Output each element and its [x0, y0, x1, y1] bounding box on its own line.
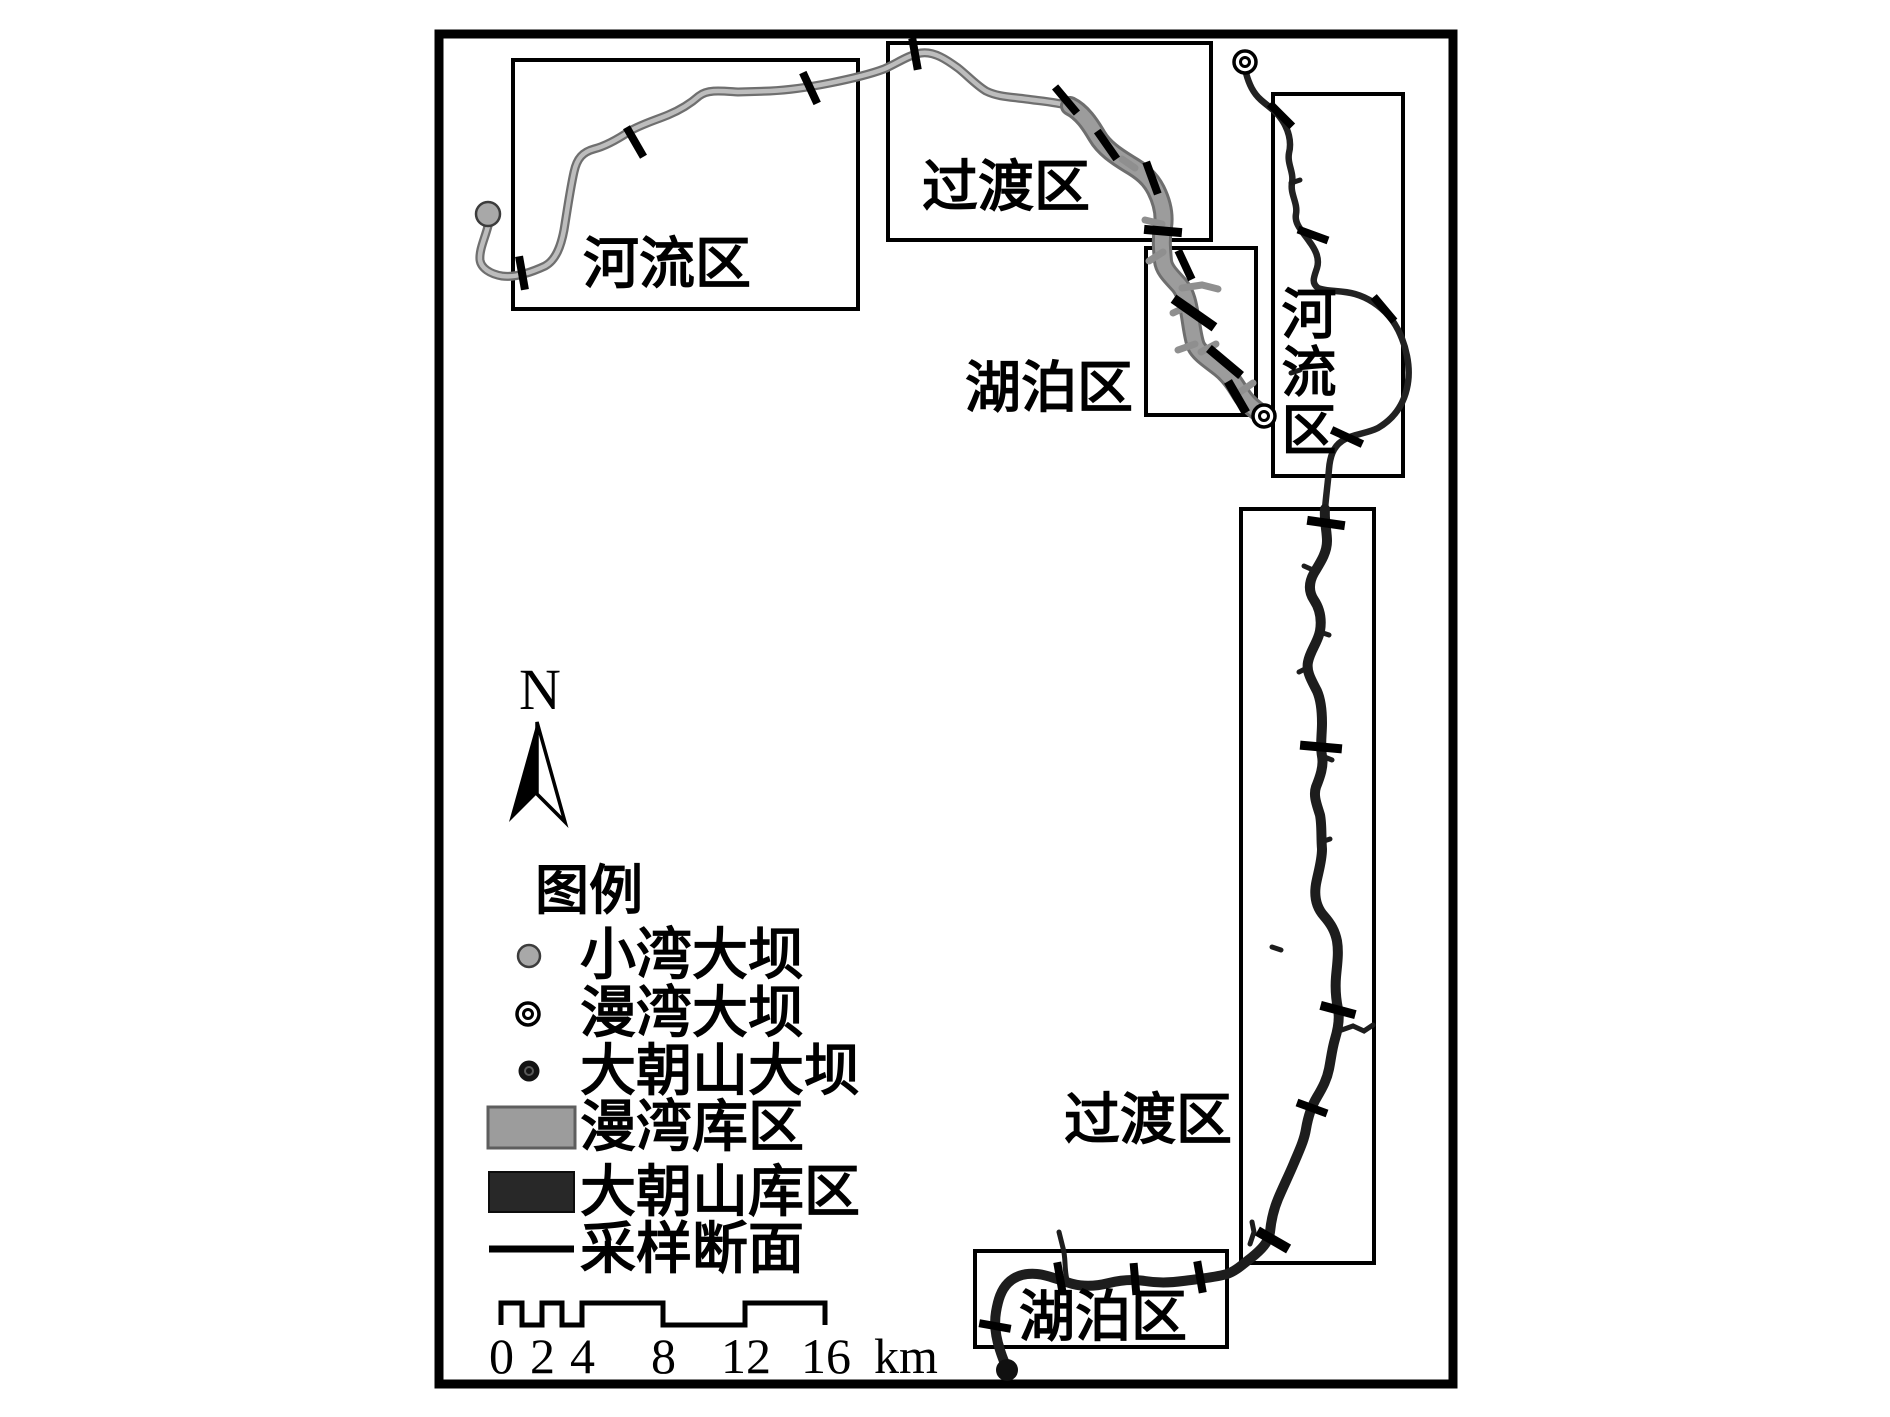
legend-item-label-xiaowan-dam: 小湾大坝: [580, 928, 804, 984]
legend-dachaoshan-dot: [519, 1061, 540, 1082]
scale-unit: km: [874, 1331, 938, 1381]
sampling-section-tick: [1297, 1103, 1327, 1114]
sampling-section-tick: [1197, 1261, 1203, 1293]
legend-item-label-manwan-dam: 漫湾大坝: [580, 986, 804, 1042]
legend-dachaoshan-dam-icon: [519, 1061, 540, 1082]
sampling-section-tick: [1144, 229, 1182, 232]
zone-box-transition-right: [1241, 509, 1374, 1263]
sampling-section-tick: [1298, 230, 1328, 241]
zone-label-manwan-river: 河流区: [583, 237, 751, 293]
manwan-dam-inner-ring: [1260, 412, 1269, 421]
scale-label-4: 4: [570, 1331, 595, 1381]
manwan-dam-marker-lake-end: [1253, 405, 1275, 427]
scale-label-8: 8: [651, 1331, 676, 1381]
legend-manwan-inner-ring: [524, 1010, 533, 1019]
map-figure: N 河流区 过渡区 湖泊区 河流区 过渡区 湖泊区 图例 小湾大坝 漫湾大坝 大…: [0, 0, 1890, 1417]
north-arrow-right-half: [537, 722, 565, 822]
legend-symbols: [488, 945, 575, 1249]
legend-manwan-reservoir-swatch: [488, 1107, 575, 1148]
legend-item-label-manwan-reservoir: 漫湾库区: [580, 1100, 804, 1156]
legend-xiaowan-dam-icon: [518, 945, 540, 967]
legend-dachaoshan-reservoir-swatch: [489, 1172, 574, 1212]
dachaoshan-dam-marker: [996, 1359, 1018, 1381]
sampling-section-tick: [912, 38, 918, 70]
scale-label-0: 0: [489, 1331, 514, 1381]
dachaoshan-river-lower: [995, 509, 1339, 1370]
scale-label-12: 12: [721, 1331, 771, 1381]
manwan-dam-inner-ring: [1241, 58, 1250, 67]
legend-item-label-sampling-section: 采样断面: [580, 1222, 804, 1278]
scale-label-2: 2: [530, 1331, 555, 1381]
north-arrow-icon: [509, 722, 565, 822]
zone-label-dachaoshan-lake: 湖泊区: [1019, 1290, 1187, 1346]
sampling-section-tick: [519, 256, 525, 289]
sampling-section-tick: [1374, 297, 1395, 322]
north-arrow-left-half: [509, 722, 537, 822]
zone-label-manwan-lake: 湖泊区: [965, 361, 1133, 417]
scale-bar: [501, 1303, 825, 1325]
scale-label-16: 16: [801, 1331, 851, 1381]
manwan-dam-marker-north: [1234, 51, 1256, 73]
zone-label-dachaoshan-transition: 过渡区: [1064, 1093, 1232, 1149]
sampling-section-tick: [1307, 520, 1345, 525]
zone-label-manwan-transition: 过渡区: [922, 160, 1090, 216]
sampling-section-tick: [1300, 745, 1342, 749]
legend-item-label-dachaoshan-reservoir: 大朝山库区: [580, 1165, 860, 1221]
sampling-section-tick: [1321, 1005, 1356, 1014]
zone-label-dachaoshan-river: 河流区: [1276, 285, 1331, 459]
legend-title: 图例: [535, 864, 643, 918]
legend-item-label-dachaoshan-dam: 大朝山大坝: [580, 1044, 860, 1100]
north-label: N: [519, 661, 561, 719]
legend-manwan-dam-icon: [517, 1003, 539, 1025]
xiaowan-dam-marker: [476, 202, 500, 226]
sampling-section-tick: [979, 1323, 1011, 1329]
